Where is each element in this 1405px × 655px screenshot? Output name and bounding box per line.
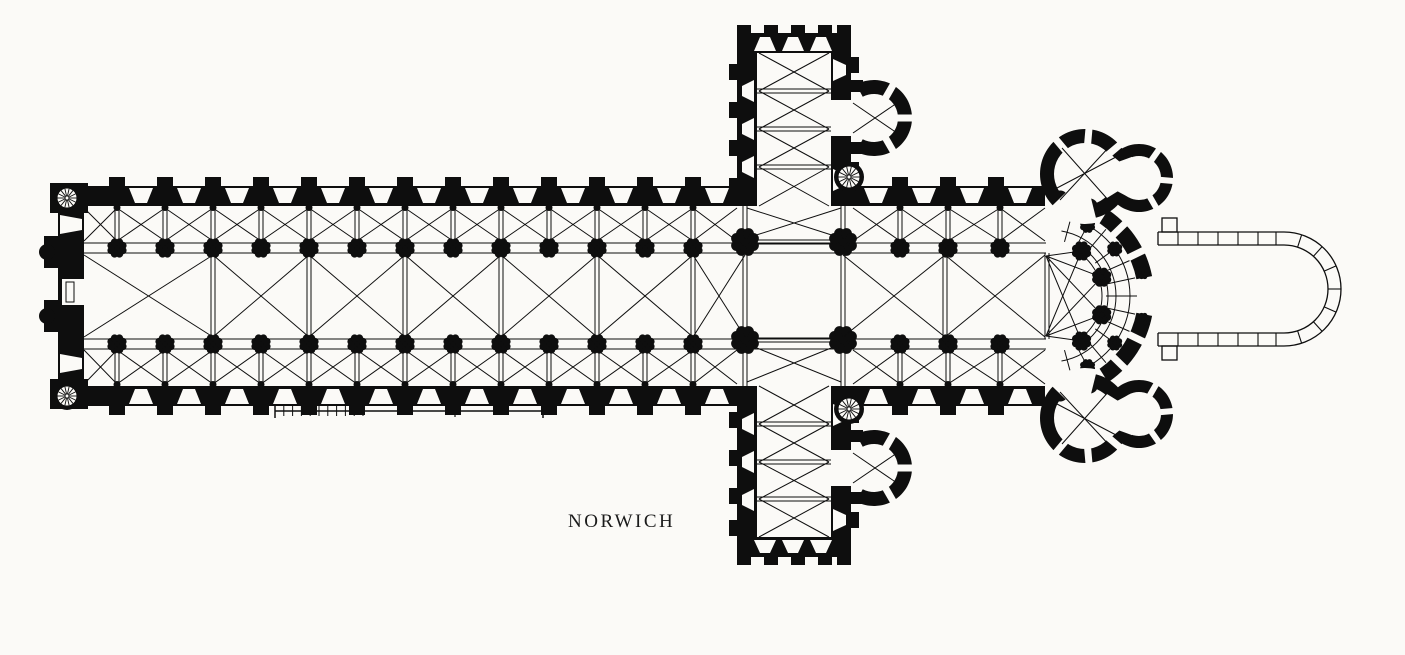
norwich-cathedral-floor-plan: NORWICH xyxy=(0,0,1405,655)
plan-title: NORWICH xyxy=(568,511,675,532)
scanned-plan-page: NORWICH xyxy=(0,0,1405,655)
